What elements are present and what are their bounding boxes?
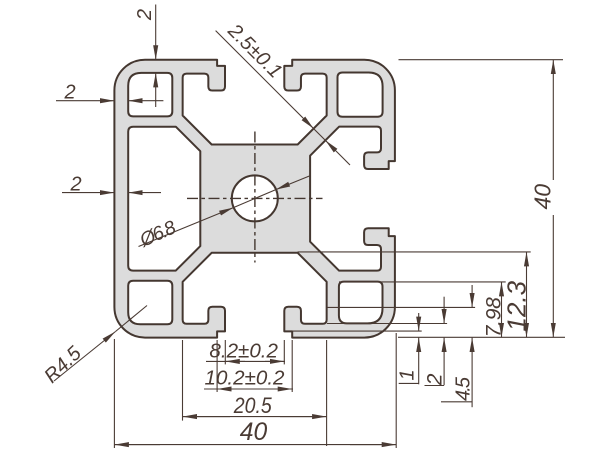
svg-text:20.5: 20.5: [233, 393, 273, 418]
svg-text:2: 2: [63, 82, 75, 104]
svg-text:R4.5: R4.5: [40, 342, 86, 388]
svg-text:40: 40: [530, 184, 556, 210]
svg-text:4.5: 4.5: [453, 376, 475, 401]
svg-text:2.5±0.1: 2.5±0.1: [223, 19, 286, 82]
svg-text:8.2±0.2: 8.2±0.2: [209, 340, 278, 363]
svg-text:1: 1: [397, 369, 419, 380]
svg-text:2: 2: [424, 373, 447, 386]
svg-text:2: 2: [134, 9, 156, 21]
svg-text:10.2±0.2: 10.2±0.2: [204, 367, 285, 390]
svg-text:12.3: 12.3: [501, 280, 531, 331]
svg-text:2: 2: [69, 174, 81, 196]
svg-text:40: 40: [240, 419, 268, 446]
